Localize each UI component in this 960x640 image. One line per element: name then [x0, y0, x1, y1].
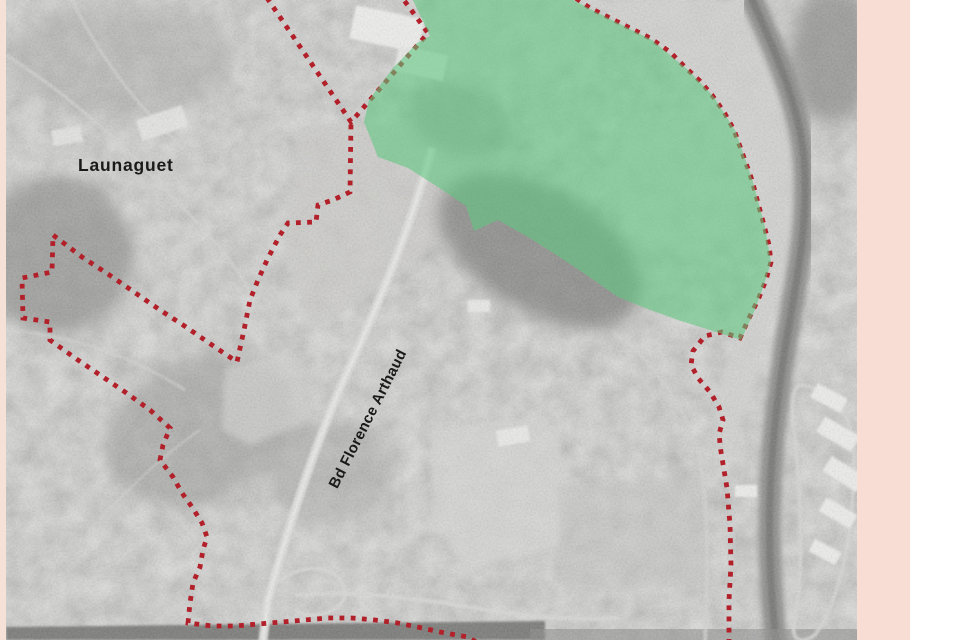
right-white-margin: [910, 0, 960, 640]
aerial-map-svg: Launaguet Bd Florence Arthaud: [6, 0, 857, 640]
right-side-band: [857, 0, 910, 640]
place-label-launaguet: Launaguet: [78, 155, 174, 175]
page-background: Launaguet Bd Florence Arthaud: [0, 0, 960, 640]
map-image: Launaguet Bd Florence Arthaud: [6, 0, 857, 640]
